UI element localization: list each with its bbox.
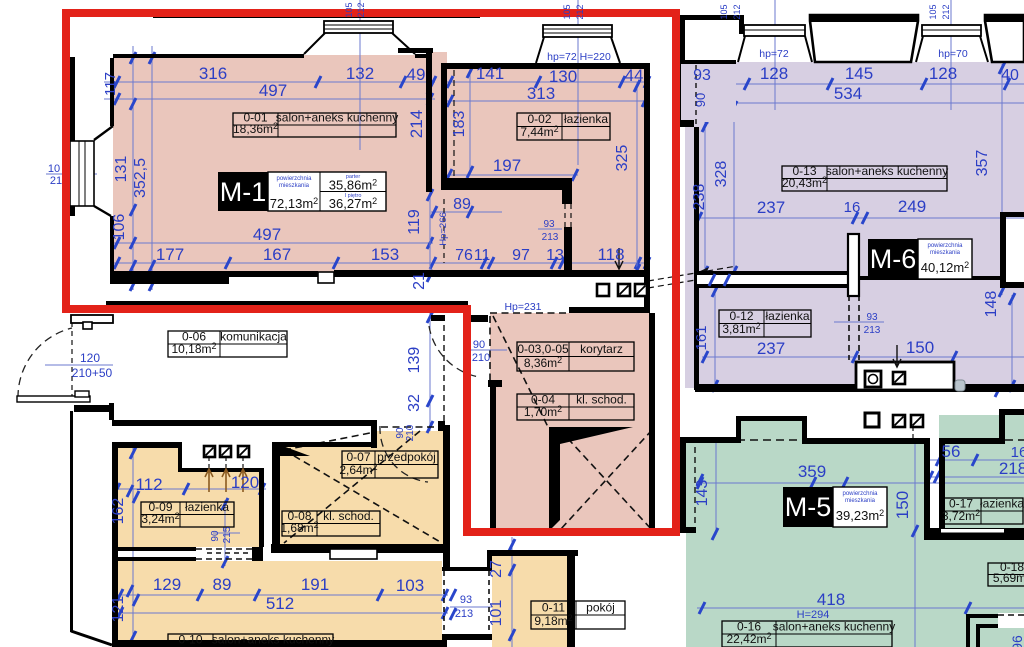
svg-text:21: 21 [50, 175, 62, 187]
svg-text:40: 40 [1001, 67, 1019, 84]
svg-text:H=294: H=294 [797, 609, 830, 621]
svg-text:141: 141 [476, 64, 504, 83]
svg-text:łazienka: łazienka [564, 112, 608, 126]
svg-text:105: 105 [928, 4, 938, 19]
svg-text:93: 93 [460, 594, 472, 606]
svg-text:mieszkania: mieszkania [279, 183, 310, 189]
svg-text:105: 105 [562, 4, 572, 19]
svg-text:105: 105 [719, 4, 729, 19]
svg-text:0-03,0-05: 0-03,0-05 [517, 342, 569, 356]
svg-text:162: 162 [110, 498, 127, 525]
svg-text:łazienka: łazienka [185, 500, 229, 514]
svg-text:salon+aneks kuchenny: salon+aneks kuchenny [212, 633, 334, 647]
svg-text:218: 218 [999, 459, 1024, 478]
svg-text:96: 96 [1009, 635, 1024, 647]
svg-text:5,69m2: 5,69m2 [993, 570, 1024, 585]
svg-text:112: 112 [135, 475, 162, 494]
svg-text:497: 497 [259, 81, 287, 100]
svg-text:132: 132 [346, 64, 374, 83]
svg-text:121: 121 [110, 596, 127, 623]
svg-text:213: 213 [542, 232, 559, 243]
svg-text:0-07: 0-07 [346, 450, 370, 464]
svg-text:237: 237 [757, 198, 785, 217]
svg-text:120: 120 [80, 351, 100, 365]
svg-text:212: 212 [941, 4, 951, 19]
svg-text:M-6: M-6 [870, 244, 917, 274]
svg-text:hp=70: hp=70 [938, 48, 968, 60]
svg-text:11: 11 [474, 247, 491, 264]
svg-text:143: 143 [694, 480, 711, 507]
svg-text:komunikacja: komunikacja [220, 330, 287, 344]
svg-text:150: 150 [893, 491, 912, 519]
svg-text:101: 101 [488, 600, 505, 627]
svg-text:325: 325 [614, 145, 631, 172]
svg-text:212: 212 [356, 2, 366, 17]
svg-text:łazienka: łazienka [980, 497, 1024, 511]
svg-text:13: 13 [546, 247, 564, 264]
svg-text:18,36m2: 18,36m2 [233, 121, 278, 136]
svg-text:M-1: M-1 [220, 177, 267, 207]
svg-text:przedpokój: przedpokój [377, 450, 436, 464]
svg-text:105: 105 [344, 2, 354, 17]
svg-text:7,44m2: 7,44m2 [520, 124, 558, 139]
svg-text:161: 161 [693, 325, 710, 350]
svg-text:40,12m2: 40,12m2 [921, 260, 969, 275]
svg-text:357: 357 [974, 150, 991, 177]
svg-text:167: 167 [263, 245, 291, 264]
svg-text:1,68m2: 1,68m2 [280, 520, 318, 535]
svg-text:93: 93 [543, 219, 555, 230]
svg-text:210: 210 [472, 352, 490, 364]
svg-text:177: 177 [156, 245, 184, 264]
svg-text:44: 44 [625, 66, 644, 85]
svg-text:72,13m2: 72,13m2 [270, 196, 318, 211]
svg-text:0-11: 0-11 [542, 601, 565, 615]
svg-text:153: 153 [371, 245, 399, 264]
svg-text:352,5: 352,5 [132, 158, 149, 198]
svg-text:249: 249 [898, 197, 926, 216]
svg-text:9,18m2: 9,18m2 [534, 613, 572, 628]
svg-text:418: 418 [817, 590, 845, 609]
svg-text:212: 212 [575, 4, 585, 19]
svg-text:328: 328 [713, 161, 730, 188]
svg-text:313: 313 [527, 84, 555, 103]
svg-text:210: 210 [405, 424, 416, 441]
svg-text:90: 90 [693, 93, 708, 107]
svg-text:1,70m2: 1,70m2 [524, 404, 562, 419]
svg-text:Hp=266: Hp=266 [438, 212, 449, 246]
svg-text:powierzchnia: powierzchnia [276, 176, 312, 182]
svg-text:212: 212 [732, 4, 742, 19]
svg-text:215: 215 [222, 526, 233, 543]
svg-text:M-5: M-5 [785, 492, 832, 522]
svg-text:131: 131 [113, 156, 130, 183]
svg-text:213: 213 [864, 325, 881, 336]
svg-text:10: 10 [48, 163, 60, 175]
svg-text:183: 183 [451, 111, 468, 138]
svg-text:20,43m2: 20,43m2 [782, 175, 827, 190]
svg-text:3,24m2: 3,24m2 [141, 511, 179, 526]
svg-text:97: 97 [512, 247, 530, 264]
svg-text:0-12: 0-12 [729, 309, 753, 323]
svg-text:salon+aneks kuchenny: salon+aneks kuchenny [826, 164, 948, 178]
svg-text:salon+aneks kuchenny: salon+aneks kuchenny [276, 111, 398, 125]
svg-text:128: 128 [760, 64, 788, 83]
svg-text:hp=72: hp=72 [759, 48, 789, 60]
svg-text:49: 49 [407, 65, 426, 84]
svg-text:238: 238 [691, 184, 708, 211]
svg-text:359: 359 [798, 462, 826, 481]
svg-text:łazienka: łazienka [765, 309, 809, 323]
svg-text:kl. schod.: kl. schod. [576, 393, 627, 407]
svg-text:36,27m2: 36,27m2 [329, 196, 377, 211]
svg-text:salon+aneks kuchenny: salon+aneks kuchenny [773, 620, 895, 634]
svg-text:119: 119 [406, 209, 423, 235]
svg-text:16: 16 [1011, 444, 1024, 461]
svg-text:8,36m2: 8,36m2 [524, 355, 562, 370]
svg-text:76: 76 [455, 247, 473, 264]
svg-text:kl. schod.: kl. schod. [323, 509, 374, 523]
svg-text:korytarz: korytarz [580, 342, 623, 356]
svg-text:0-10: 0-10 [178, 633, 202, 647]
svg-text:powierzchnia: powierzchnia [927, 243, 963, 249]
svg-text:16: 16 [844, 199, 861, 216]
svg-text:22,42m2: 22,42m2 [726, 631, 771, 646]
svg-text:210+50: 210+50 [72, 366, 113, 380]
svg-text:106: 106 [111, 214, 128, 241]
svg-text:214: 214 [407, 110, 426, 138]
svg-text:139: 139 [406, 347, 423, 374]
svg-text:237: 237 [757, 339, 785, 358]
svg-text:10,18m2: 10,18m2 [171, 341, 216, 356]
svg-text:2,64m2: 2,64m2 [339, 462, 377, 477]
svg-text:hp=72 H=220: hp=72 H=220 [547, 51, 611, 63]
svg-text:129: 129 [153, 575, 181, 594]
svg-text:35,86m2: 35,86m2 [329, 178, 377, 193]
svg-text:150: 150 [906, 338, 934, 357]
svg-text:56: 56 [942, 442, 961, 461]
svg-text:534: 534 [834, 84, 862, 103]
svg-text:32: 32 [406, 394, 423, 412]
svg-text:pokój: pokój [586, 601, 615, 615]
svg-text:497: 497 [253, 225, 281, 244]
svg-text:21: 21 [411, 272, 428, 290]
svg-text:118: 118 [597, 245, 624, 264]
svg-text:Hp=231: Hp=231 [504, 301, 541, 313]
svg-text:3,72m2: 3,72m2 [942, 508, 980, 523]
svg-text:27: 27 [488, 560, 505, 578]
svg-text:powierzchnia: powierzchnia [842, 491, 878, 497]
svg-text:39,23m2: 39,23m2 [836, 508, 884, 523]
svg-text:90: 90 [210, 530, 221, 542]
svg-text:213: 213 [455, 608, 473, 620]
svg-text:3,81m2: 3,81m2 [722, 321, 760, 336]
svg-text:0-02: 0-02 [527, 112, 551, 126]
svg-text:89: 89 [453, 196, 471, 213]
svg-text:103: 103 [396, 576, 424, 595]
svg-text:93: 93 [866, 312, 878, 323]
svg-text:191: 191 [301, 575, 329, 594]
svg-text:mieszkania: mieszkania [930, 250, 961, 256]
svg-text:93: 93 [693, 67, 711, 84]
svg-text:316: 316 [199, 64, 227, 83]
svg-text:89: 89 [213, 575, 232, 594]
svg-text:mieszkania: mieszkania [845, 498, 876, 504]
svg-text:148: 148 [983, 291, 1000, 318]
svg-text:90: 90 [473, 339, 485, 351]
svg-text:128: 128 [929, 64, 957, 83]
svg-text:512: 512 [266, 594, 294, 613]
svg-text:120: 120 [231, 473, 259, 492]
svg-text:197: 197 [493, 156, 521, 175]
svg-text:145: 145 [845, 64, 873, 83]
svg-text:117: 117 [102, 72, 119, 96]
